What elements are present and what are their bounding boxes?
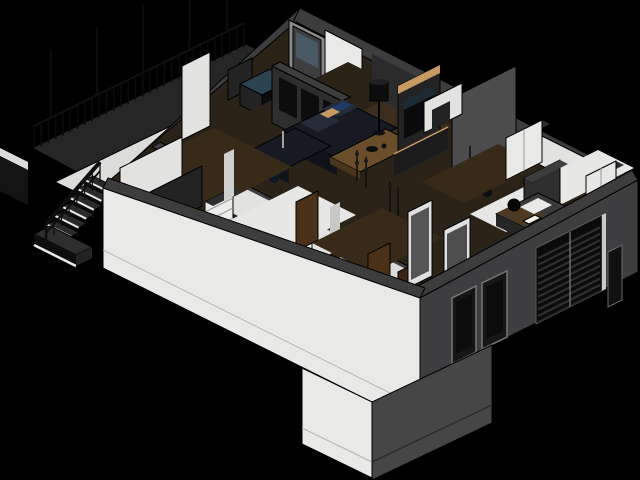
slit-window: [608, 245, 622, 307]
white-wall-panel: [182, 52, 210, 140]
house-isometric-render: [0, 0, 640, 480]
entry-door-1: [452, 286, 476, 364]
cad-viewport[interactable]: [0, 0, 640, 480]
entry-door-2: [482, 271, 507, 349]
wall-end-cap: [224, 149, 234, 201]
sphere-lamp: [508, 199, 520, 211]
